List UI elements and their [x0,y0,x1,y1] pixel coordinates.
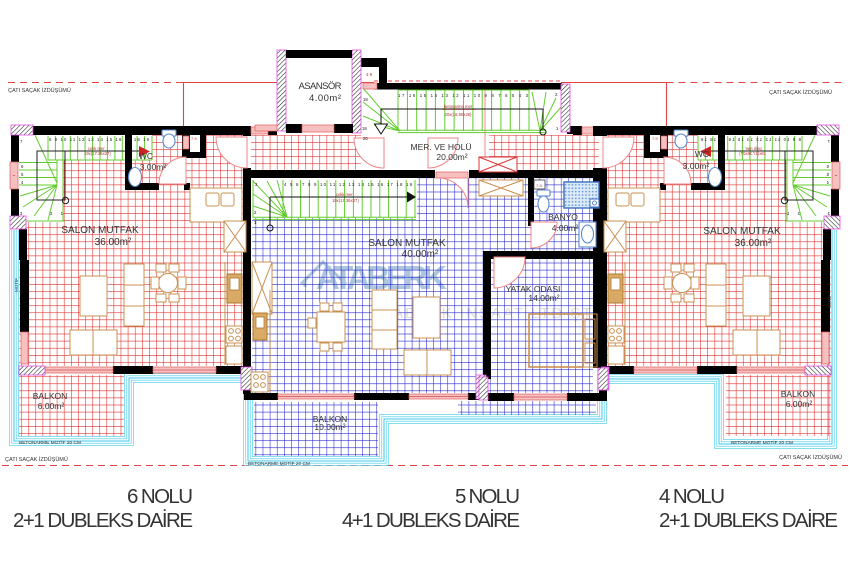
svg-text:ÇATI SAÇAK İZDÜŞÜMÜ: ÇATI SAÇAK İZDÜŞÜMÜ [8,87,71,94]
svg-text:14.00m²: 14.00m² [528,293,559,303]
svg-text:WC: WC [695,149,709,159]
svg-text:çelik mer: çelik mer [336,192,353,197]
svg-text:ÇATI SAÇAK İZDÜŞÜMÜ: ÇATI SAÇAK İZDÜŞÜMÜ [5,456,68,463]
svg-text:6 NOLU: 6 NOLU [127,485,193,508]
svg-text:20x(16.50x28): 20x(16.50x28) [445,112,472,117]
svg-text:17 16 15 14 13 12 11 10 9 8 7: 17 16 15 14 13 12 11 10 9 8 7 6 5 4 3 [398,93,529,98]
svg-text:ÇATI SAÇAK İZDÜŞÜMÜ: ÇATI SAÇAK İZDÜŞÜMÜ [769,89,832,96]
svg-text:ASANSÖR: ASANSÖR [299,81,342,92]
svg-text:MOTİF: MOTİF [826,294,832,308]
svg-text:36.00m²: 36.00m² [735,238,772,249]
svg-text:ÇATI SAÇAK İZDÜŞÜMÜ: ÇATI SAÇAK İZDÜŞÜMÜ [779,454,842,461]
svg-text:40.00m²: 40.00m² [402,249,439,260]
svg-text:BANYO: BANYO [548,212,578,222]
svg-text:36.00m²: 36.00m² [95,237,132,248]
svg-text:6.00m²: 6.00m² [786,399,813,409]
svg-text:BETONARME MOTİF 20 CM: BETONARME MOTİF 20 CM [19,439,81,446]
svg-text:5 NOLU: 5 NOLU [455,485,520,508]
svg-text:WC: WC [139,151,153,161]
svg-text:4.00m²: 4.00m² [309,93,341,104]
svg-text:2+1 DUBLEKS DAİRE: 2+1 DUBLEKS DAİRE [13,509,193,532]
svg-text:7-9: 7-9 [536,183,543,188]
svg-text:18: 18 [363,97,368,102]
svg-text:SALON MUTFAK: SALON MUTFAK [368,238,446,249]
svg-text:20.00m²: 20.00m² [436,152,467,162]
svg-text:6.00m²: 6.00m² [38,401,65,411]
svg-text:MER. VE HOLÜ: MER. VE HOLÜ [411,142,472,152]
svg-text:10.00m²: 10.00m² [314,422,345,432]
svg-text:4.00m²: 4.00m² [552,223,579,233]
svg-text:4 NOLU: 4 NOLU [659,485,725,508]
svg-text:7-9: 7-9 [191,136,198,141]
svg-text:7-9: 7-9 [652,136,659,141]
svg-text:BETONARME MOTİF 20 CM: BETONARME MOTİF 20 CM [248,460,310,467]
svg-text:betonarme mer: betonarme mer [444,104,473,109]
svg-text:3.00m²: 3.00m² [140,162,167,172]
svg-text:4+1 DUBLEKS DAİRE: 4+1 DUBLEKS DAİRE [342,509,520,532]
svg-text:BALKON: BALKON [33,391,68,401]
svg-text:3.00m²: 3.00m² [683,161,710,171]
svg-text:MOTİF: MOTİF [13,278,19,292]
svg-text:19: 19 [362,126,367,131]
svg-text:19x(17.36x27): 19x(17.36x27) [332,198,359,203]
svg-text:SALON MUTFAK: SALON MUTFAK [61,225,139,236]
svg-text:2+1 DUBLEKS DAİRE: 2+1 DUBLEKS DAİRE [659,509,838,532]
svg-text:20: 20 [363,136,368,141]
svg-text:4 5 6 7 8 9 10 11 12 13 14 15: 4 5 6 7 8 9 10 11 12 13 14 15 16 17 18 1… [284,182,413,187]
svg-text:4-9: 4-9 [366,72,373,77]
svg-text:BALKON: BALKON [781,389,816,399]
svg-text:BETONARME MOTİF 20 CM: BETONARME MOTİF 20 CM [731,439,793,446]
svg-text:SALON MUTFAK: SALON MUTFAK [703,226,781,237]
